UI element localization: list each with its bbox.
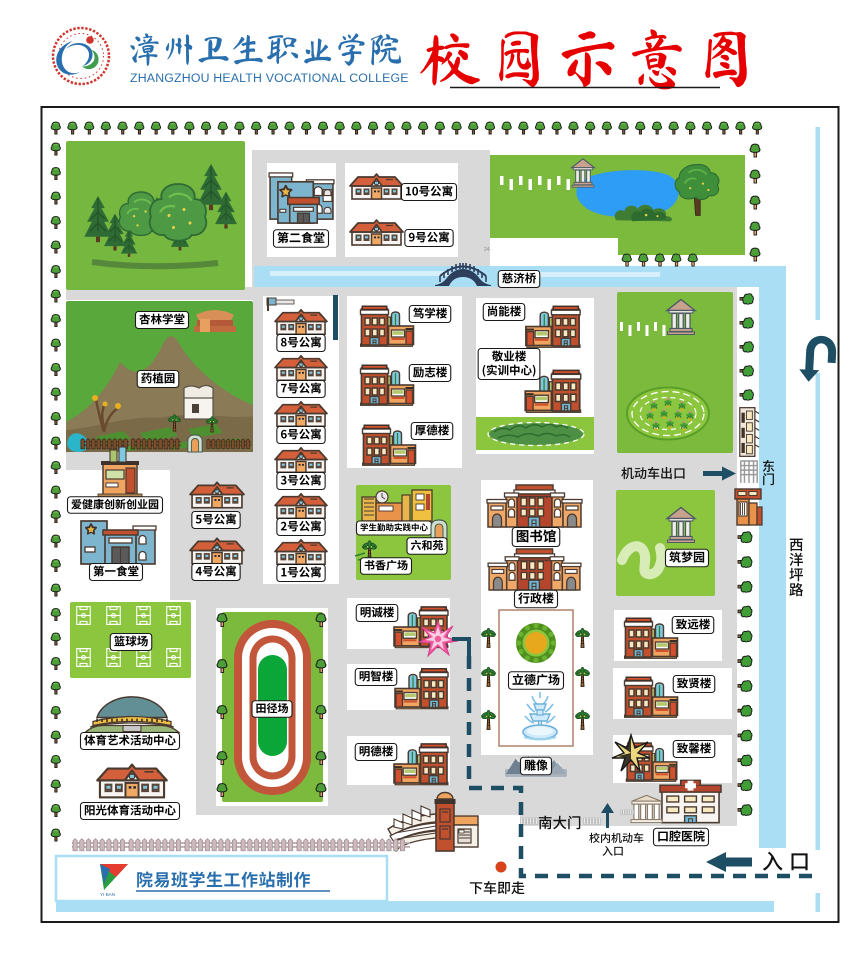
svg-text:ZHANGZHOU HEALTH VOCATIONAL CO: ZHANGZHOU HEALTH VOCATIONAL COLLEGE bbox=[130, 71, 409, 85]
svg-text:YI·BAN: YI·BAN bbox=[100, 892, 115, 897]
svg-text:24.: 24. bbox=[484, 247, 491, 253]
